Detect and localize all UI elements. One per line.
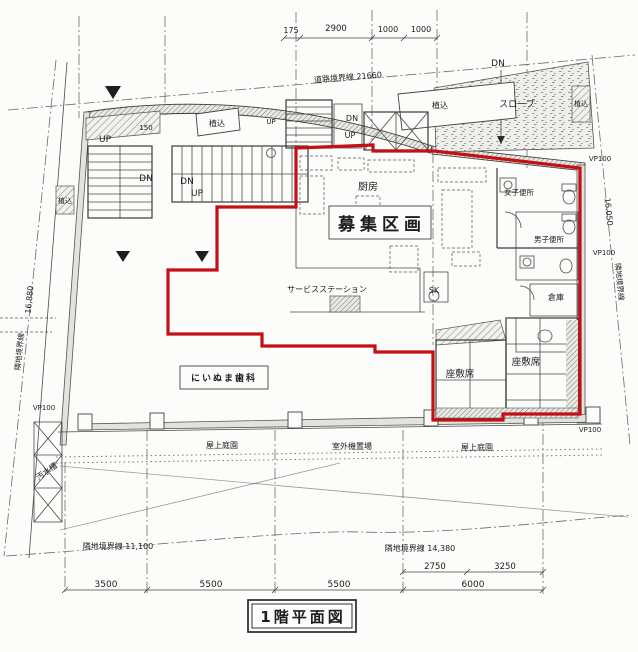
service-station-label: サービスステーション	[287, 285, 367, 294]
lease-area-label: 募集区画	[337, 214, 426, 235]
svg-text:植込: 植込	[574, 99, 588, 108]
floor-plan-sheet: 厨房 募集区画 にいぬま歯科 サービスステーション 座敷席 座敷席 倉庫 女子便…	[0, 0, 638, 652]
svg-text:植込: 植込	[432, 100, 448, 110]
right-boundary-value: 16.050	[603, 197, 615, 226]
sk-label: SK	[429, 286, 440, 295]
left-boundary-value: 16,880	[24, 285, 36, 314]
svg-text:5500: 5500	[200, 580, 223, 590]
svg-text:VP100: VP100	[589, 155, 611, 163]
svg-text:175: 175	[283, 26, 298, 35]
top-dimension-chain	[281, 35, 440, 41]
svg-text:DN: DN	[139, 174, 153, 184]
svg-text:植込: 植込	[58, 196, 72, 205]
svg-text:VP100: VP100	[33, 404, 55, 412]
svg-text:UP: UP	[191, 189, 204, 199]
setback-line-2	[60, 463, 340, 530]
sheet-title: 1階平面図	[260, 608, 345, 626]
kitchen-label: 厨房	[358, 180, 378, 193]
svg-text:UP: UP	[345, 131, 356, 140]
bottom-left-boundary-label: 隣地境界線 11,100	[83, 541, 154, 551]
svg-text:UP: UP	[266, 118, 275, 126]
svg-text:VP100: VP100	[579, 426, 601, 434]
floor-plan-drawing: 厨房 募集区画 にいぬま歯科 サービスステーション 座敷席 座敷席 倉庫 女子便…	[0, 0, 638, 652]
svg-text:UP: UP	[99, 135, 112, 145]
svg-text:植込: 植込	[209, 118, 225, 128]
interior-partitions	[290, 168, 580, 352]
terrace-band	[56, 424, 602, 463]
dental-clinic-label: にいぬま歯科	[191, 372, 257, 384]
svg-text:DN: DN	[180, 177, 194, 187]
storage-label: 倉庫	[548, 292, 564, 302]
svg-text:VP100: VP100	[593, 249, 615, 257]
ledge-dimension: 150	[139, 124, 152, 132]
tatami-rooms	[436, 318, 578, 418]
building-walls	[60, 104, 600, 445]
roof-garden-left-label: 屋上庭園	[206, 440, 238, 450]
svg-text:DN: DN	[346, 114, 358, 123]
svg-text:6000: 6000	[462, 580, 485, 590]
svg-text:2750: 2750	[424, 562, 446, 572]
svg-text:1000: 1000	[411, 25, 431, 34]
roof-garden-right-label: 屋上庭園	[461, 442, 493, 452]
bench-mark-symbol	[267, 149, 276, 158]
mens-toilet-label: 男子便所	[534, 234, 564, 244]
womens-toilet-label: 女子便所	[504, 187, 534, 197]
svg-text:1000: 1000	[378, 25, 398, 34]
svg-text:5500: 5500	[328, 580, 351, 590]
right-boundary-label: 隣地境界線	[613, 263, 627, 302]
title-block: 1階平面図	[248, 600, 356, 632]
sewage-tank-label: 汚水槽	[34, 460, 59, 482]
svg-text:2900: 2900	[325, 24, 347, 34]
outdoor-units-label: 室外機置場	[332, 441, 372, 451]
tatami-right-label: 座敷席	[512, 356, 541, 368]
slope-label: スロープ	[499, 99, 534, 110]
bottom-right-boundary-label: 隣地境界線 14,380	[385, 543, 456, 553]
svg-text:DN: DN	[491, 59, 505, 69]
west-wall	[60, 112, 90, 445]
svg-text:3500: 3500	[95, 580, 118, 590]
tatami-left-label: 座敷席	[446, 368, 475, 380]
toilet-fixtures	[500, 178, 576, 342]
svg-text:3250: 3250	[494, 562, 516, 572]
